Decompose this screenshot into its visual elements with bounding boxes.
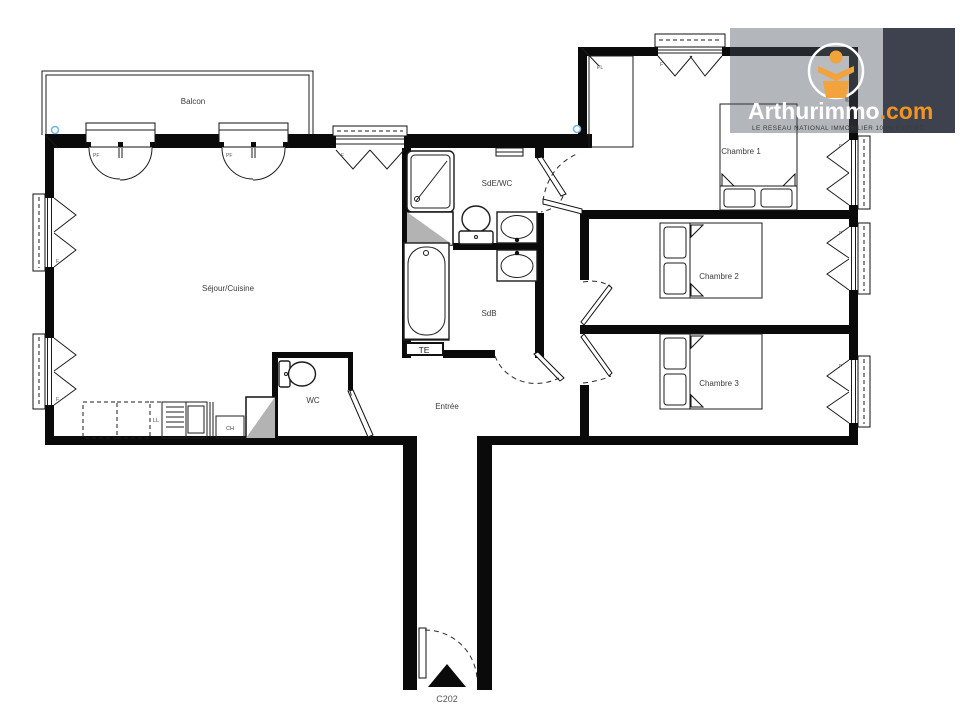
logo-tagline: LE RESEAU NATIONAL IMMOBILIER 100% EXPER… [752,125,924,132]
window-sejour-left-1 [33,194,76,271]
door-entry-c202 [419,628,477,687]
brand-logo: Arthurimmo.com ® LE RESEAU NATIONAL IMMO… [730,28,955,133]
window-sejour-top [333,126,407,169]
symbol-blue-circle-1 [52,127,59,134]
toilet-sde [459,206,493,244]
tag-f-chambre3: F [839,364,842,370]
washing-machine [162,402,207,438]
label-chambre3: Chambre 3 [699,379,739,388]
door-wc [348,390,373,437]
entry-arrow [428,664,466,687]
tag-pl: PL [597,65,603,71]
door-chambre2 [581,281,612,325]
duct-shaft-kitchen [246,397,275,438]
label-sejour: Séjour/Cuisine [202,284,255,293]
tag-f-chambre1-top: F [660,62,663,68]
svg-text:TE: TE [419,345,430,355]
sink-sde [497,212,537,243]
door-chambre1 [543,153,582,214]
label-wc: WC [306,396,320,405]
label-sdb: SdB [481,309,496,318]
label-entree: Entrée [435,402,459,411]
window-sde-imposte [496,148,523,156]
tag-f-sejour-top: F [341,153,344,159]
floorplan-drawing: TE [0,0,960,721]
sink-sdb [497,250,537,281]
door-sdb [495,352,564,383]
toilet-wc [279,361,316,387]
label-sde-wc: SdE/WC [482,179,513,188]
electrical-panel: TE [406,343,443,355]
symbol-blue-circle-2 [574,126,581,133]
label-chambre1: Chambre 1 [721,147,761,156]
label-unit-number: C202 [436,694,458,704]
balcony-door-pf-2 [219,123,288,180]
tag-ch: CH [226,426,234,432]
window-chambre1-top [655,34,725,76]
kitchen-counter [83,402,244,438]
window-sejour-left-2 [33,334,76,409]
logo-wordmark: Arthurimmo.com [748,98,933,124]
closet-pl [589,56,633,147]
tag-f-chambre1-right: F [839,144,842,150]
tag-pf-2: PF [226,153,232,159]
bathtub [404,243,449,340]
walls [45,47,858,690]
logo-registered-mark: ® [845,97,850,104]
tag-f-left-1: F [56,259,59,265]
tag-pf-1: PF [93,153,99,159]
bed-chambre2 [660,223,762,298]
label-balcon: Balcon [181,97,205,106]
window-chambre3 [827,356,870,427]
tag-ll: LL [153,418,159,424]
floorplan-page: TE [0,0,960,721]
tag-f-left-2: F [56,397,59,403]
balcony-door-pf-1 [86,123,155,180]
door-chambre3 [581,334,612,383]
bed-chambre3 [660,334,762,409]
shower [407,151,454,212]
duct-shaft-bath [407,212,453,245]
label-chambre2: Chambre 2 [699,272,739,281]
window-chambre1-right [827,136,870,209]
window-chambre2 [827,223,870,294]
tag-f-chambre2: F [839,231,842,237]
